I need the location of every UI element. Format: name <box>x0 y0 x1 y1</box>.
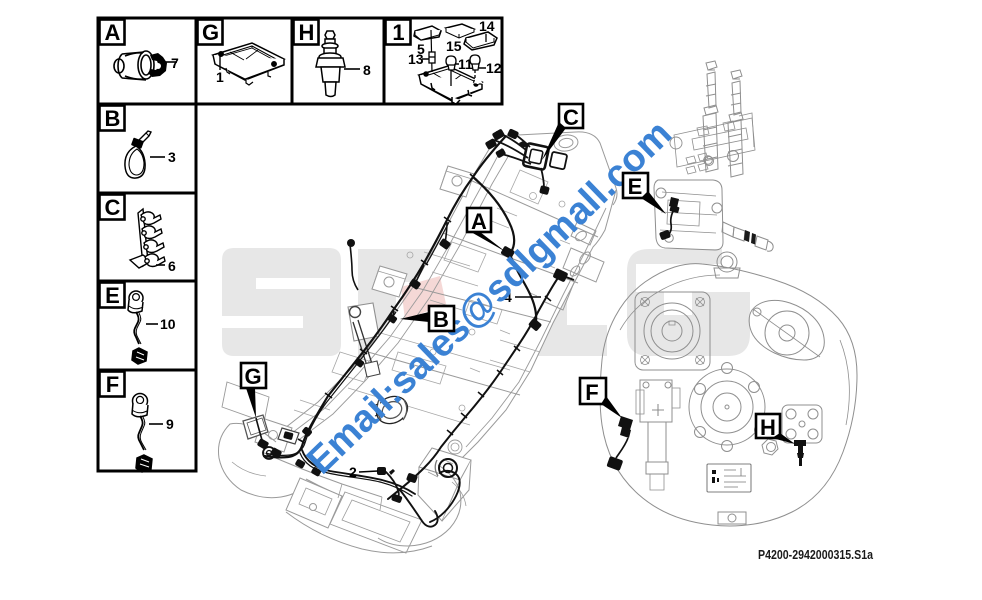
svg-text:2: 2 <box>349 464 357 480</box>
svg-text:E: E <box>105 283 120 308</box>
svg-text:E: E <box>628 174 643 199</box>
svg-text:7: 7 <box>171 55 179 71</box>
svg-text:F: F <box>106 372 119 397</box>
svg-text:10: 10 <box>160 316 176 332</box>
svg-text:15: 15 <box>446 38 462 54</box>
svg-text:A: A <box>105 20 121 45</box>
svg-text:C: C <box>563 105 579 130</box>
svg-text:14: 14 <box>479 18 495 34</box>
svg-text:1: 1 <box>216 69 224 85</box>
svg-text:1: 1 <box>392 20 404 45</box>
svg-text:H: H <box>760 415 776 440</box>
svg-text:3: 3 <box>168 149 176 165</box>
svg-text:B: B <box>105 106 121 131</box>
svg-text:P4200-2942000315.S1a: P4200-2942000315.S1a <box>758 548 874 562</box>
svg-text:13: 13 <box>408 51 424 67</box>
svg-text:G: G <box>244 364 261 389</box>
svg-text:F: F <box>585 380 598 405</box>
svg-text:H: H <box>299 20 315 45</box>
svg-text:A: A <box>471 209 487 234</box>
svg-text:6: 6 <box>168 258 176 274</box>
svg-text:9: 9 <box>166 416 174 432</box>
svg-text:G: G <box>202 20 219 45</box>
svg-text:11: 11 <box>458 56 473 72</box>
svg-text:12: 12 <box>486 60 502 76</box>
svg-text:8: 8 <box>363 62 371 78</box>
svg-text:B: B <box>433 307 449 332</box>
svg-text:C: C <box>105 195 121 220</box>
